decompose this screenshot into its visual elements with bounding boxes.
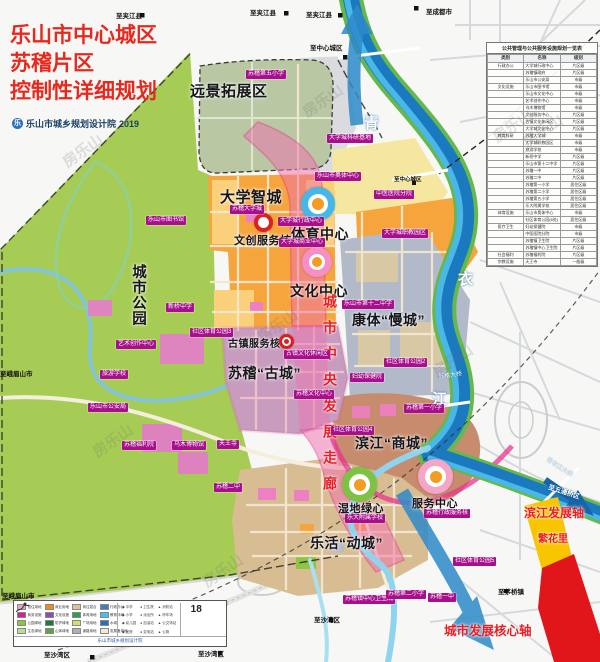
legend-item: 生态绿地 <box>17 627 42 635</box>
direction-label: 至峨眉山市 <box>0 368 33 378</box>
legend-sheet-number: 18 <box>191 604 202 615</box>
facility-table-body: 行政办公大学城行政中心片区级苏稽镇政府片区级乐山市公安局市级文化设施乐山市图书馆… <box>488 62 597 265</box>
node-ancient-core <box>279 334 294 349</box>
legend-item: 文化设施 <box>45 611 70 619</box>
legend-swatch <box>45 604 54 610</box>
table-row: 社区体育公园(6处)居住区级 <box>488 216 597 223</box>
facility-label: 乐山市奥体中心 <box>315 172 361 181</box>
legend-item: 防护绿地 <box>45 619 70 627</box>
direction-label: 至成都市 <box>426 6 452 16</box>
direction-label: 至茅桥镇 <box>498 586 524 596</box>
table-row: 医疗卫生妇幼保健院市级 <box>488 223 597 230</box>
table-row: 社会福利苏稽福利院片区级 <box>488 251 597 258</box>
legend-swatch <box>45 628 54 634</box>
agency-year: 2019 <box>119 119 139 129</box>
agency-line: 乐 乐山市城乡规划设计院 2019 <box>12 117 139 130</box>
table-row: 乐山市第十二中学片区级 <box>488 160 597 167</box>
table-row: 苏稽第二小学居住区级 <box>488 188 597 195</box>
table-row: 苏稽二中片区级 <box>488 174 597 181</box>
legend-item: 体育用地 <box>72 611 97 619</box>
table-row: 乐大附属学校居住区级 <box>488 202 597 209</box>
label-university-city: 大学智城 <box>220 186 282 207</box>
direction-label: 至沙湾区 <box>44 649 70 659</box>
facility-label: 苏稽大学城 <box>230 205 264 214</box>
table-row: 文化设施乐山市图书馆市级 <box>488 83 597 90</box>
title-line-3: 控制性详细规划 <box>10 78 157 106</box>
facility-label: 苏稽行政服务核 <box>424 509 470 518</box>
legend-minimap-icon <box>14 601 30 615</box>
label-expansion-zone: 远景拓展区 <box>190 80 268 101</box>
facility-label: 乐大附属学校 <box>345 514 385 523</box>
facility-label: 乐山市第十二中学 <box>342 300 394 309</box>
map-legend: 居住用地商业用地商住混合行政办公商务设施文化设施体育用地教育科研公园绿地防护绿地… <box>13 600 227 647</box>
facility-label: 乌木博物馆 <box>172 441 206 450</box>
facility-label: 中医医院分院 <box>374 190 414 199</box>
legend-symbol-column: ◆ 中学◆ 小学◆ 幼儿园◆ 医院 <box>122 603 136 636</box>
facility-label: 大学城职教园区 <box>382 229 428 238</box>
facility-label: 社区体育公园3 <box>190 328 233 337</box>
facility-label: 乐山市公安局 <box>88 403 128 412</box>
facility-table-title: 公共管理与公共服务设施规划一览表 <box>487 43 597 54</box>
facility-label: 社区体育公园2 <box>384 358 427 367</box>
title-line-1: 乐山市中心城区 <box>10 22 157 50</box>
legend-swatch <box>72 612 81 618</box>
legend-swatch <box>72 628 81 634</box>
legend-item: 商业用地 <box>45 603 70 611</box>
title-line-2: 苏稽片区 <box>10 50 157 78</box>
legend-swatch <box>72 604 81 610</box>
facility-label: 新桥中学 <box>166 303 194 312</box>
agency-name: 乐山市城乡规划设计院 <box>26 117 116 130</box>
legend-swatch <box>17 620 26 626</box>
facility-label: 苏稽二中 <box>214 483 242 492</box>
direction-label: 至中心城区 <box>310 42 343 52</box>
legend-symbol-column: ▲ 消防站▲ 停车场▲ 公交场站▲ 公厕 <box>158 603 176 636</box>
facility-label: 妇幼保健院 <box>350 373 384 382</box>
facility-label: 社区体育公园4 <box>331 426 374 435</box>
direction-label: 至沙湾区 <box>314 614 340 624</box>
table-row: 新桥中学片区级 <box>488 153 597 160</box>
table-row: 艺术创作中心市级 <box>488 97 597 104</box>
legend-symbol-column: ● 卫生院● 派出所● 加油站● 变电站 <box>140 603 154 636</box>
legend-swatch <box>45 612 54 618</box>
facility-label: 艺术创作中心 <box>116 340 156 349</box>
table-row: 苏稽第一小学居住区级 <box>488 181 597 188</box>
table-row: 乐山市公安局市级 <box>488 76 597 83</box>
direction-label: 至夹江县 <box>116 10 142 20</box>
legend-extras: ◆ 中学◆ 小学◆ 幼儿园◆ 医院● 卫生院● 派出所● 加油站● 变电站▲ 消… <box>117 603 176 636</box>
col-level: 级别 <box>560 55 596 63</box>
col-name: 名称 <box>524 55 560 63</box>
direction-label: 至沙湾区 <box>198 648 224 658</box>
legend-swatch <box>100 612 109 618</box>
table-row: 苏稽镇中心卫生院片区级 <box>488 244 597 251</box>
river-char-qing: 青 <box>364 112 379 133</box>
legend-item: 公园绿地 <box>17 619 42 627</box>
legend-swatch <box>45 620 54 626</box>
node-creative-core <box>254 213 273 232</box>
page-title: 乐山市中心城区 苏稽片区 控制性详细规划 <box>10 22 157 106</box>
legend-item: 道路用地 <box>72 627 97 635</box>
table-row: 行政办公大学城行政中心片区级 <box>488 62 597 69</box>
facility-table: 公共管理与公共服务设施规划一览表 类别 名称 级别 行政办公大学城行政中心片区级… <box>486 42 598 267</box>
legend-swatch <box>100 620 109 626</box>
legend-swatch <box>17 628 26 634</box>
facility-label: 天王寺 <box>217 440 239 449</box>
legend-swatch <box>72 620 81 626</box>
label-commercial-city: 滨江“商城” <box>355 433 428 453</box>
table-row: 中医医院分院市级 <box>488 230 597 237</box>
legend-swatch <box>100 628 109 634</box>
table-row: 苏稽第五小学居住区级 <box>488 195 597 202</box>
facility-label: 苏稽第五小学 <box>246 70 286 79</box>
table-row: 宗教设施天王寺一般级 <box>488 258 597 265</box>
direction-label: 至夹江县 <box>250 7 276 17</box>
legend-item: 山体绿地 <box>45 627 70 635</box>
label-fanhuali: 繁花里 <box>538 530 568 545</box>
facility-label: 乐山市图书馆 <box>146 216 186 225</box>
planning-map: 乐山市中心城区 苏稽片区 控制性详细规划 乐 乐山市城乡规划设计院 2019 远… <box>0 0 600 662</box>
table-row: 体育设施乐山市奥体中心市级 <box>488 209 597 216</box>
table-row: 苏稽镇卫生院片区级 <box>488 237 597 244</box>
facility-label: 大学城行政中心 <box>278 217 324 226</box>
facility-label: 苏稽一中 <box>428 593 456 602</box>
table-row: 苏稽一中片区级 <box>488 167 597 174</box>
facility-label: 旅游学校 <box>100 370 128 379</box>
col-category: 类别 <box>488 55 524 63</box>
label-riverside-axis: 滨江发展轴 <box>524 504 584 521</box>
node-wetland-core <box>342 467 377 502</box>
legend-chips: 居住用地商业用地商住混合行政办公商务设施文化设施体育用地教育科研公园绿地防护绿地… <box>17 603 113 636</box>
table-row: 乌木博物馆市级 <box>488 104 597 111</box>
node-service-center <box>418 459 453 494</box>
facility-label: 大学城科研基地 <box>327 134 373 143</box>
facility-label: 苏稽第二小学 <box>386 590 426 599</box>
label-core-axis: 城市发展核心轴 <box>444 620 532 639</box>
table-row: 苏稽镇政府片区级 <box>488 69 597 76</box>
facility-label: 苏稽第一小学 <box>404 404 444 413</box>
river-char-yi: 衣 <box>458 268 473 289</box>
facility-label: 大学城商业中心 <box>279 238 325 247</box>
legend-item: 广场用地 <box>72 619 97 627</box>
legend-swatch <box>100 604 109 610</box>
label-slow-city: 康体“慢城” <box>352 310 425 330</box>
legend-item: 商住混合 <box>72 603 97 611</box>
node-sports-center <box>301 187 335 221</box>
facility-label: 古镇文化休闲区 <box>284 350 330 359</box>
agency-logo-icon: 乐 <box>12 118 23 129</box>
direction-label: 至中心城区 <box>394 175 422 183</box>
facility-label: 苏稽文化中心 <box>294 390 334 399</box>
node-culture-center <box>302 247 332 277</box>
table-row: 旅游学校市级 <box>488 146 597 153</box>
legend-footer: 乐山市城乡规划设计院 <box>14 636 226 646</box>
direction-label: 至夹江县 <box>306 9 332 19</box>
facility-label: 社区体育公园5 <box>453 557 496 566</box>
facility-table-header: 类别 名称 级别 <box>488 55 597 63</box>
label-city-park: 城市公园 <box>128 264 149 326</box>
label-active-city: 乐活“动城” <box>310 533 383 553</box>
table-row: 乐山市文化中心市级 <box>488 90 597 97</box>
label-ancient-city: 苏稽“古城” <box>228 363 301 383</box>
direction-label: 至峨眉山市 <box>2 590 35 600</box>
